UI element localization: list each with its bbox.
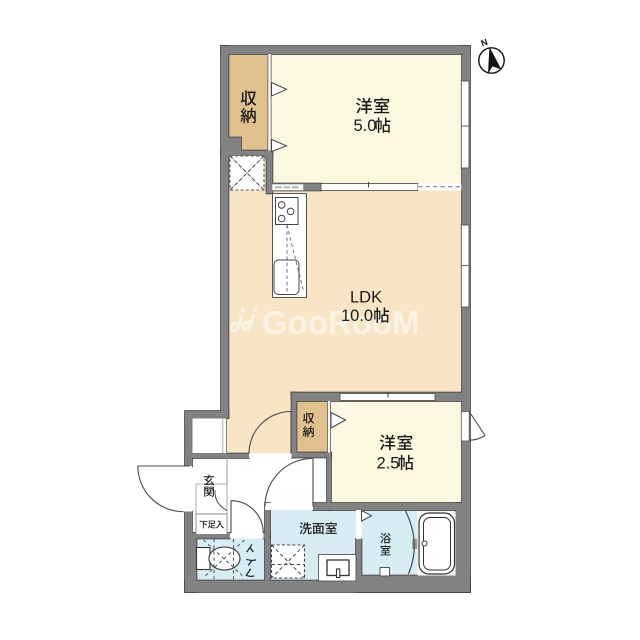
svg-text:5.0: 5.0	[354, 117, 377, 135]
svg-text:LDK: LDK	[350, 289, 382, 307]
svg-text:10.0: 10.0	[341, 307, 373, 325]
svg-text:2.5: 2.5	[377, 455, 400, 473]
